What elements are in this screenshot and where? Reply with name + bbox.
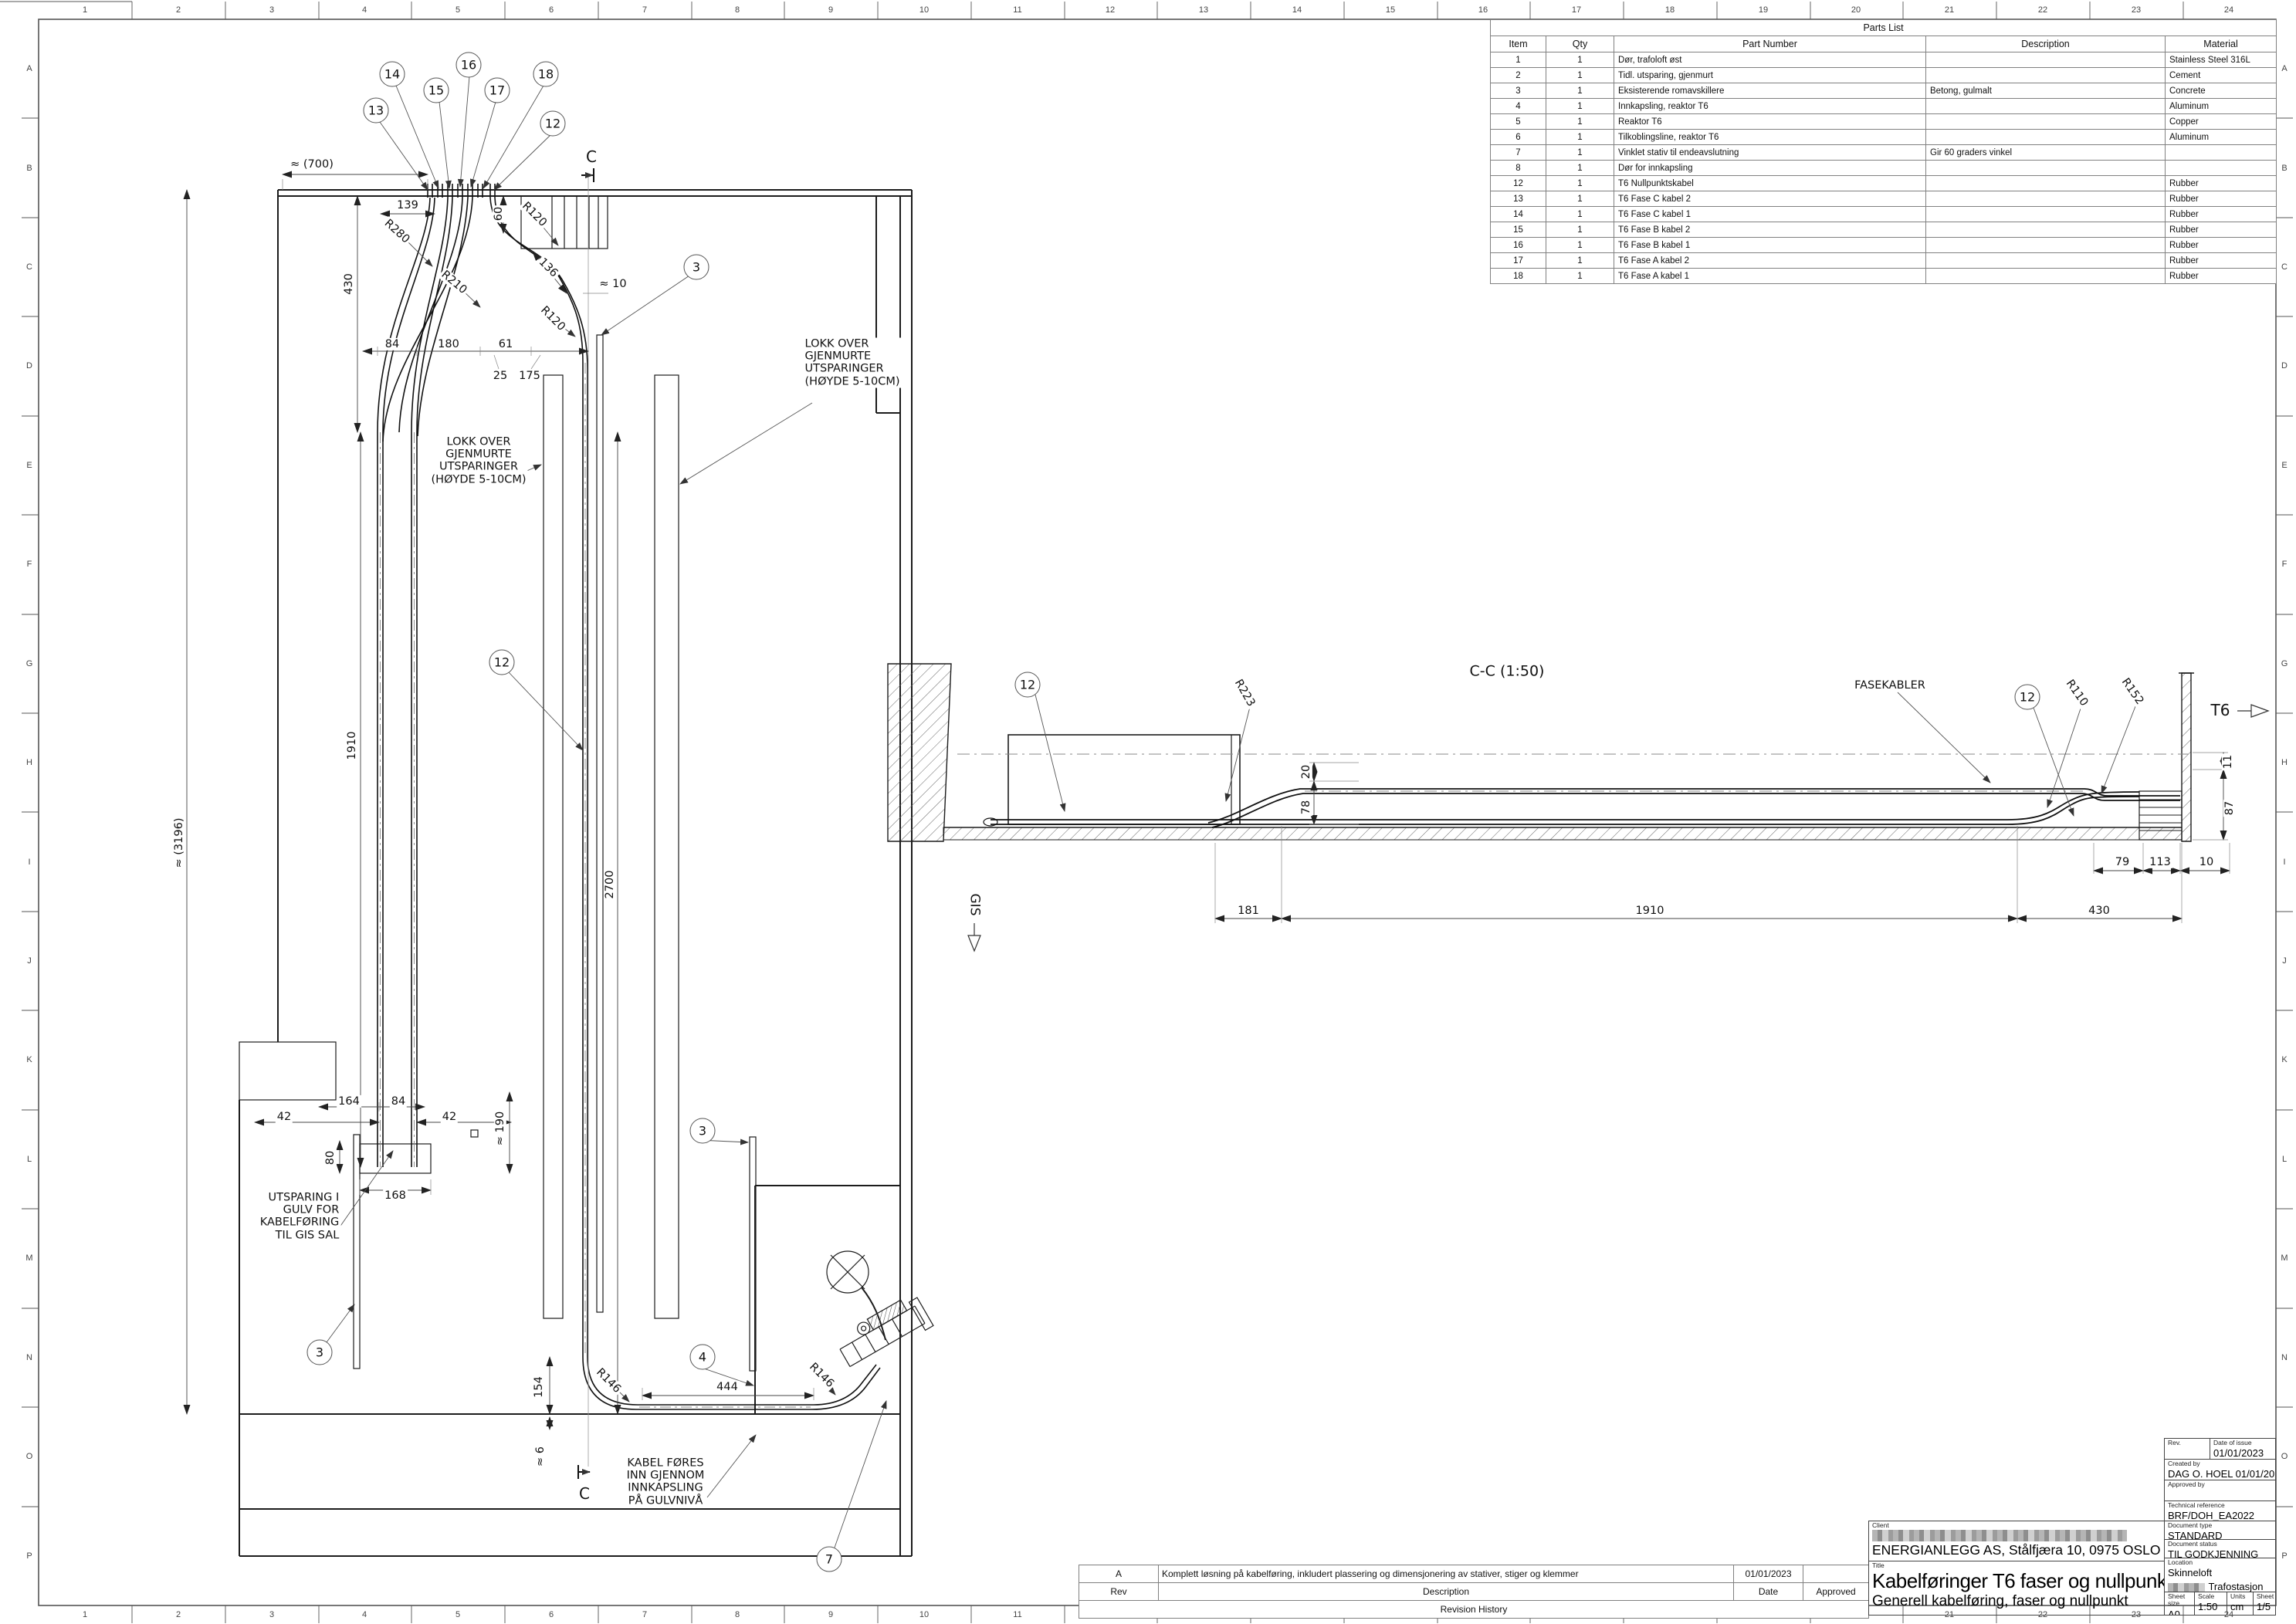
part-item-no: 15 [1491,222,1546,238]
part-item-no: 2 [1491,68,1546,83]
part-number: Tilkoblingsline, reaktor T6 [1614,130,1926,145]
parts-list-row: 6 1 Tilkoblingsline, reaktor T6 Aluminum [1491,130,2277,145]
parts-list-row: 16 1 T6 Fase B kabel 1 Rubber [1491,238,2277,253]
part-item-no: 7 [1491,145,1546,161]
titleblock-scale-cell: Scale 1:50 [2194,1592,2227,1616]
part-item-no: 16 [1491,238,1546,253]
part-description [1926,222,2166,238]
titleblock-approved-cell: Approved by [2164,1480,2276,1501]
value-scale: 1:50 [2198,1601,2217,1612]
plan-section-marks [578,168,594,1479]
part-qty: 1 [1546,253,1614,269]
parts-list-row: 13 1 T6 Fase C kabel 2 Rubber [1491,191,2277,207]
value-created-by: DAG O. HOEL 01/01/2023 [2168,1468,2276,1480]
part-number: Innkapsling, reaktor T6 [1614,99,1926,114]
part-material: Stainless Steel 316L [2166,52,2277,68]
part-description [1926,238,2166,253]
part-qty: 1 [1546,130,1614,145]
part-qty: 1 [1546,52,1614,68]
revision-history: A Komplett løsning på kabelføring, inklu… [1079,1565,1868,1619]
part-number: T6 Fase B kabel 2 [1614,222,1926,238]
titleblock-docstatus-cell: Document status TIL GODKJENNING [2164,1539,2276,1558]
value-sheet: 1/5 [2257,1601,2271,1612]
label-document-type: Document type [2168,1522,2272,1529]
part-qty: 1 [1546,207,1614,222]
label-approved-by: Approved by [2168,1481,2272,1488]
value-date-of-issue: 01/01/2023 [2213,1447,2264,1459]
label-client: Client [1872,1522,2161,1529]
part-description [1926,161,2166,176]
redacted-client-line [1872,1530,2127,1541]
part-qty: 1 [1546,114,1614,130]
revision-header-row: Rev Description Date Approved [1079,1583,1869,1601]
part-description: Gir 60 graders vinkel [1926,145,2166,161]
titleblock-doctype-cell: Document type STANDARD [2164,1521,2276,1540]
label-document-status: Document status [2168,1541,2272,1548]
part-number: T6 Fase B kabel 1 [1614,238,1926,253]
part-material: Rubber [2166,253,2277,269]
part-material: Concrete [2166,83,2277,99]
label-location: Location [2168,1559,2272,1566]
part-number: T6 Fase C kabel 2 [1614,191,1926,207]
titleblock-created-cell: Created by DAG O. HOEL 01/01/2023 [2164,1459,2276,1480]
part-material: Rubber [2166,269,2277,284]
part-material: Rubber [2166,176,2277,191]
part-number: Tidl. utsparing, gjenmurt [1614,68,1926,83]
parts-list-row: 17 1 T6 Fase A kabel 2 Rubber [1491,253,2277,269]
parts-list-title: Parts List [1491,20,2277,36]
plan-cables [378,184,880,1409]
revision-col-date: Date [1734,1583,1803,1601]
parts-list-row: 7 1 Vinklet stativ til endeavslutning Gi… [1491,145,2277,161]
label-technical-reference: Technical reference [2168,1502,2272,1509]
part-item-no: 1 [1491,52,1546,68]
part-material: Aluminum [2166,99,2277,114]
part-number: Reaktor T6 [1614,114,1926,130]
plan-leaders [327,76,886,1548]
part-item-no: 14 [1491,207,1546,222]
part-material: Rubber [2166,238,2277,253]
part-number: Vinklet stativ til endeavslutning [1614,145,1926,161]
part-description [1926,191,2166,207]
part-material [2166,145,2277,161]
label-units: Units [2230,1593,2250,1600]
parts-list-row: 4 1 Innkapsling, reaktor T6 Aluminum [1491,99,2277,114]
part-item-no: 5 [1491,114,1546,130]
titleblock-sheetsize-cell: Sheet size A0 [2164,1592,2195,1616]
titleblock-sheet-cell: Sheet 1/5 [2253,1592,2276,1616]
titleblock-title-cell: Title Kabelføringer T6 faser og nullpunk… [1868,1561,2165,1616]
part-number: T6 Fase A kabel 2 [1614,253,1926,269]
part-material: Cement [2166,68,2277,83]
titleblock-date-cell: Date of issue 01/01/2023 [2210,1438,2276,1460]
section-structure [888,664,2194,841]
part-qty: 1 [1546,99,1614,114]
part-item-no: 3 [1491,83,1546,99]
part-qty: 1 [1546,222,1614,238]
parts-list-row: 5 1 Reaktor T6 Copper [1491,114,2277,130]
part-description: Betong, gulmalt [1926,83,2166,99]
parts-list: Parts List Item Qty Part Number Descript… [1490,19,2276,284]
part-description [1926,114,2166,130]
revision-description: Komplett løsning på kabelføring, inklude… [1159,1565,1734,1583]
parts-col-part-number: Part Number [1614,36,1926,52]
parts-list-row: 3 1 Eksisterende romavskillere Betong, g… [1491,83,2277,99]
part-number: Eksisterende romavskillere [1614,83,1926,99]
part-description [1926,253,2166,269]
label-rev: Rev. [2168,1440,2206,1446]
part-item-no: 4 [1491,99,1546,114]
value-location-line1: Skinneloft [2168,1567,2212,1578]
part-item-no: 13 [1491,191,1546,207]
revision-col-rev: Rev [1079,1583,1159,1601]
part-qty: 1 [1546,191,1614,207]
part-description [1926,130,2166,145]
part-qty: 1 [1546,161,1614,176]
part-description [1926,52,2166,68]
label-sheet: Sheet [2257,1593,2272,1600]
value-location-line2: Trafostasjon [2208,1581,2263,1592]
parts-col-material: Material [2166,36,2277,52]
parts-list-row: 14 1 T6 Fase C kabel 1 Rubber [1491,207,2277,222]
redacted-location-word [2168,1583,2205,1592]
parts-list-row: 12 1 T6 Nullpunktskabel Rubber [1491,176,2277,191]
titleblock-techref-cell: Technical reference BRF/DOH_EA2022 [2164,1501,2276,1521]
plan-dimensions [187,174,814,1429]
part-material: Rubber [2166,222,2277,238]
label-date-of-issue: Date of issue [2213,1440,2272,1446]
part-qty: 1 [1546,238,1614,253]
revision-row: A Komplett løsning på kabelføring, inklu… [1079,1565,1869,1583]
part-number: T6 Fase C kabel 1 [1614,207,1926,222]
label-scale: Scale [2198,1593,2223,1600]
parts-list-row: 18 1 T6 Fase A kabel 1 Rubber [1491,269,2277,284]
section-cables [984,789,2180,827]
part-item-no: 18 [1491,269,1546,284]
part-qty: 1 [1546,68,1614,83]
plan-centerlines [381,363,811,1407]
plan-walls [239,190,912,1556]
revision-col-approved: Approved [1803,1583,1869,1601]
revision-approved [1803,1565,1869,1583]
part-description [1926,269,2166,284]
part-qty: 1 [1546,176,1614,191]
part-item-no: 8 [1491,161,1546,176]
part-number: T6 Nullpunktskabel [1614,176,1926,191]
revision-history-title: Revision History [1079,1601,1869,1619]
value-technical-reference: BRF/DOH_EA2022 [2168,1510,2254,1521]
part-material: Rubber [2166,207,2277,222]
drawing-subtitle: Generell kabelføring, faser og nullpunkt [1872,1593,2128,1609]
revision-title-row: Revision History [1079,1601,1869,1619]
plan-structures [239,196,886,1371]
part-description [1926,176,2166,191]
parts-list-row: 2 1 Tidl. utsparing, gjenmurt Cement [1491,68,2277,83]
titleblock-client-cell: Client ENERGIANLEGG AS, Stålfjæra 10, 09… [1868,1521,2165,1561]
revision-col-description: Description [1159,1583,1734,1601]
label-title: Title [1872,1562,2161,1569]
parts-list-row: 1 1 Dør, trafoloft øst Stainless Steel 3… [1491,52,2277,68]
revision-date: 01/01/2023 [1734,1565,1803,1583]
part-number: Dør, trafoloft øst [1614,52,1926,68]
part-item-no: 6 [1491,130,1546,145]
drawing-sheet: 123456789101112131415161718192021222324 … [0,0,2296,1624]
part-qty: 1 [1546,269,1614,284]
part-description [1926,99,2166,114]
parts-col-item: Item [1491,36,1546,52]
part-number: T6 Fase A kabel 1 [1614,269,1926,284]
value-units: cm [2230,1601,2244,1612]
label-sheet-size: Sheet size [2168,1593,2191,1608]
part-item-no: 12 [1491,176,1546,191]
part-description [1926,68,2166,83]
value-client: ENERGIANLEGG AS, Stålfjæra 10, 0975 OSLO [1872,1542,2161,1558]
drawing-title: Kabelføringer T6 faser og nullpunkt [1872,1569,2165,1592]
titleblock-units-cell: Units cm [2227,1592,2254,1616]
part-qty: 1 [1546,145,1614,161]
parts-col-description: Description [1926,36,2166,52]
part-material: Aluminum [2166,130,2277,145]
part-material: Copper [2166,114,2277,130]
revision-rev: A [1079,1565,1159,1583]
titleblock-location-cell: Location Skinneloft Trafostasjon [2164,1558,2276,1592]
parts-list-row: 8 1 Dør for innkapsling [1491,161,2277,176]
value-sheet-size: A0 [2168,1609,2180,1616]
parts-col-qty: Qty [1546,36,1614,52]
part-item-no: 17 [1491,253,1546,269]
label-created-by: Created by [2168,1460,2272,1467]
part-qty: 1 [1546,83,1614,99]
parts-list-row: 15 1 T6 Fase B kabel 2 Rubber [1491,222,2277,238]
part-number: Dør for innkapsling [1614,161,1926,176]
part-material [2166,161,2277,176]
section-centerlines [957,754,2189,791]
part-material: Rubber [2166,191,2277,207]
titleblock-rev-cell: Rev. [2164,1438,2210,1460]
plan-extension-lines [283,179,814,1400]
part-description [1926,207,2166,222]
